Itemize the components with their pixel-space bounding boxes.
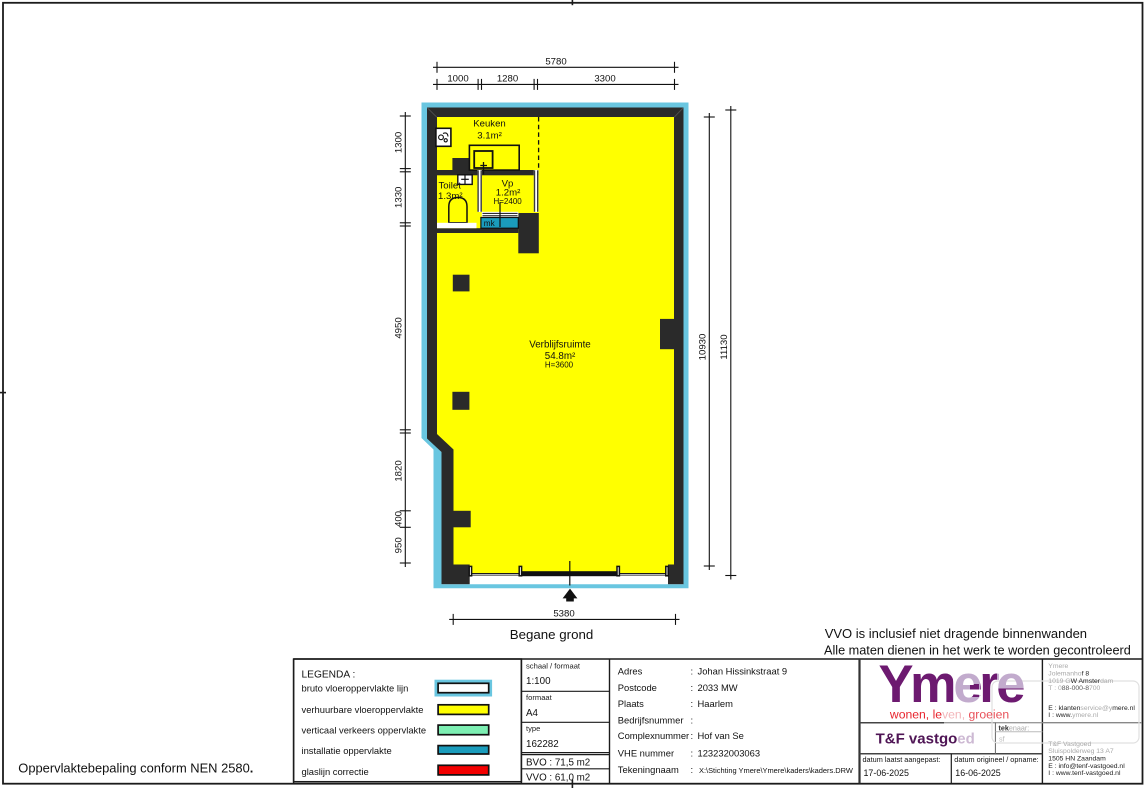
- svg-text:verticaal verkeers oppervlakte: verticaal verkeers oppervlakte: [302, 725, 427, 736]
- svg-text:E : info@tenf-vastgoed.nl: E : info@tenf-vastgoed.nl: [1048, 763, 1125, 770]
- svg-text:T : 088-000-8700: T : 088-000-8700: [1048, 685, 1100, 692]
- svg-text:sf: sf: [999, 735, 1005, 744]
- svg-text:Complexnummer: Complexnummer: [618, 730, 689, 741]
- svg-text:Haarlem: Haarlem: [698, 698, 734, 709]
- svg-text:formaat: formaat: [526, 693, 553, 702]
- svg-text:Hof van Se: Hof van Se: [698, 730, 744, 741]
- svg-text:Begane grond: Begane grond: [510, 627, 594, 642]
- svg-text:H=2400: H=2400: [493, 197, 522, 206]
- svg-text:LEGENDA :: LEGENDA :: [302, 669, 356, 680]
- svg-text:installatie oppervlakte: installatie oppervlakte: [302, 745, 392, 756]
- svg-text:Sluispolderweg 13 A7: Sluispolderweg 13 A7: [1048, 748, 1114, 755]
- svg-text:2033 MW: 2033 MW: [698, 682, 738, 693]
- svg-text:1:100: 1:100: [526, 676, 551, 687]
- svg-text:17-06-2025: 17-06-2025: [864, 768, 909, 778]
- svg-text:Ymere: Ymere: [1048, 663, 1068, 670]
- svg-text:VVO : 61,0 m2: VVO : 61,0 m2: [526, 772, 590, 783]
- svg-text:5780: 5780: [545, 56, 566, 67]
- svg-text:BVO : 71,5 m2: BVO : 71,5 m2: [526, 758, 590, 769]
- svg-text:I : www.ymere.nl: I : www.ymere.nl: [1048, 712, 1098, 719]
- svg-text:A4: A4: [526, 708, 539, 719]
- svg-text:T&F Vastgoed: T&F Vastgoed: [1048, 741, 1091, 748]
- svg-text:X:\Stichting Ymere\Ymere\kader: X:\Stichting Ymere\Ymere\kaders\kaders.D…: [699, 766, 853, 775]
- svg-text:tekenaar:: tekenaar:: [999, 723, 1030, 732]
- svg-text:Tekeningnaam: Tekeningnaam: [618, 764, 679, 775]
- svg-text:glaslijn correctie: glaslijn correctie: [302, 766, 369, 777]
- svg-text:1000: 1000: [447, 73, 468, 84]
- svg-text:mk: mk: [484, 219, 496, 228]
- svg-text:950: 950: [394, 537, 405, 553]
- svg-text::: :: [691, 682, 694, 693]
- svg-text:1820: 1820: [394, 460, 405, 481]
- svg-text:1019 GW Amsterdam: 1019 GW Amsterdam: [1048, 678, 1113, 685]
- svg-text:1300: 1300: [394, 132, 405, 153]
- svg-text::: :: [691, 730, 694, 741]
- svg-text:Oppervlaktebepaling conform NE: Oppervlaktebepaling conform NEN 2580.: [18, 760, 253, 775]
- svg-text:I : www.tenf-vastgoed.nl: I : www.tenf-vastgoed.nl: [1048, 770, 1121, 777]
- svg-text:1505 HN Zaandam: 1505 HN Zaandam: [1048, 756, 1106, 763]
- svg-text:10930: 10930: [698, 334, 709, 361]
- svg-text::: :: [691, 715, 694, 726]
- svg-text:Verblijfsruimte: Verblijfsruimte: [529, 340, 591, 351]
- svg-text:datum laatst aangepast:: datum laatst aangepast:: [863, 755, 941, 764]
- svg-text:schaal / formaat: schaal / formaat: [526, 662, 581, 671]
- svg-text:VHE nummer: VHE nummer: [618, 748, 674, 759]
- svg-text:123232003063: 123232003063: [698, 748, 761, 759]
- svg-text:H=3600: H=3600: [545, 361, 574, 370]
- svg-text::: :: [691, 666, 694, 677]
- svg-text::: :: [691, 698, 694, 709]
- svg-text:1330: 1330: [394, 187, 405, 208]
- svg-text:3.1m²: 3.1m²: [477, 131, 502, 142]
- svg-text:T&F vastgoed: T&F vastgoed: [876, 731, 975, 748]
- svg-text:4950: 4950: [394, 317, 405, 338]
- svg-text:Plaats: Plaats: [618, 698, 644, 709]
- svg-text:wonen, leven, groeien: wonen, leven, groeien: [889, 707, 1009, 721]
- svg-text:400: 400: [394, 511, 405, 527]
- svg-text:Postcode: Postcode: [618, 682, 657, 693]
- svg-text:Jolemanhof 8: Jolemanhof 8: [1048, 671, 1089, 678]
- svg-text:verhuurbare vloeroppervlakte: verhuurbare vloeroppervlakte: [302, 704, 424, 715]
- svg-text:3300: 3300: [594, 73, 615, 84]
- svg-text:datum origineel / opname:: datum origineel / opname:: [954, 755, 1038, 764]
- svg-text:E : klantenservice@ymere.nl: E : klantenservice@ymere.nl: [1048, 705, 1135, 712]
- svg-text:162282: 162282: [526, 739, 559, 750]
- svg-text:Adres: Adres: [618, 666, 643, 677]
- svg-text:11130: 11130: [719, 334, 730, 359]
- svg-text:Keuken: Keuken: [473, 119, 506, 130]
- svg-text:1280: 1280: [497, 73, 518, 84]
- svg-text:bruto vloeroppervlakte lijn: bruto vloeroppervlakte lijn: [302, 683, 409, 694]
- svg-text::: :: [691, 764, 694, 775]
- svg-text:Johan Hissinkstraat 9: Johan Hissinkstraat 9: [698, 666, 788, 677]
- svg-text::: :: [691, 748, 694, 759]
- svg-text:16-06-2025: 16-06-2025: [955, 768, 1000, 778]
- svg-text:5380: 5380: [553, 608, 574, 619]
- svg-text:1.3m²: 1.3m²: [438, 191, 463, 202]
- svg-text:type: type: [526, 724, 540, 733]
- svg-text:Bedrijfsnummer: Bedrijfsnummer: [618, 715, 684, 726]
- svg-text:VVO is inclusief niet dragende: VVO is inclusief niet dragende binnenwan…: [825, 626, 1087, 641]
